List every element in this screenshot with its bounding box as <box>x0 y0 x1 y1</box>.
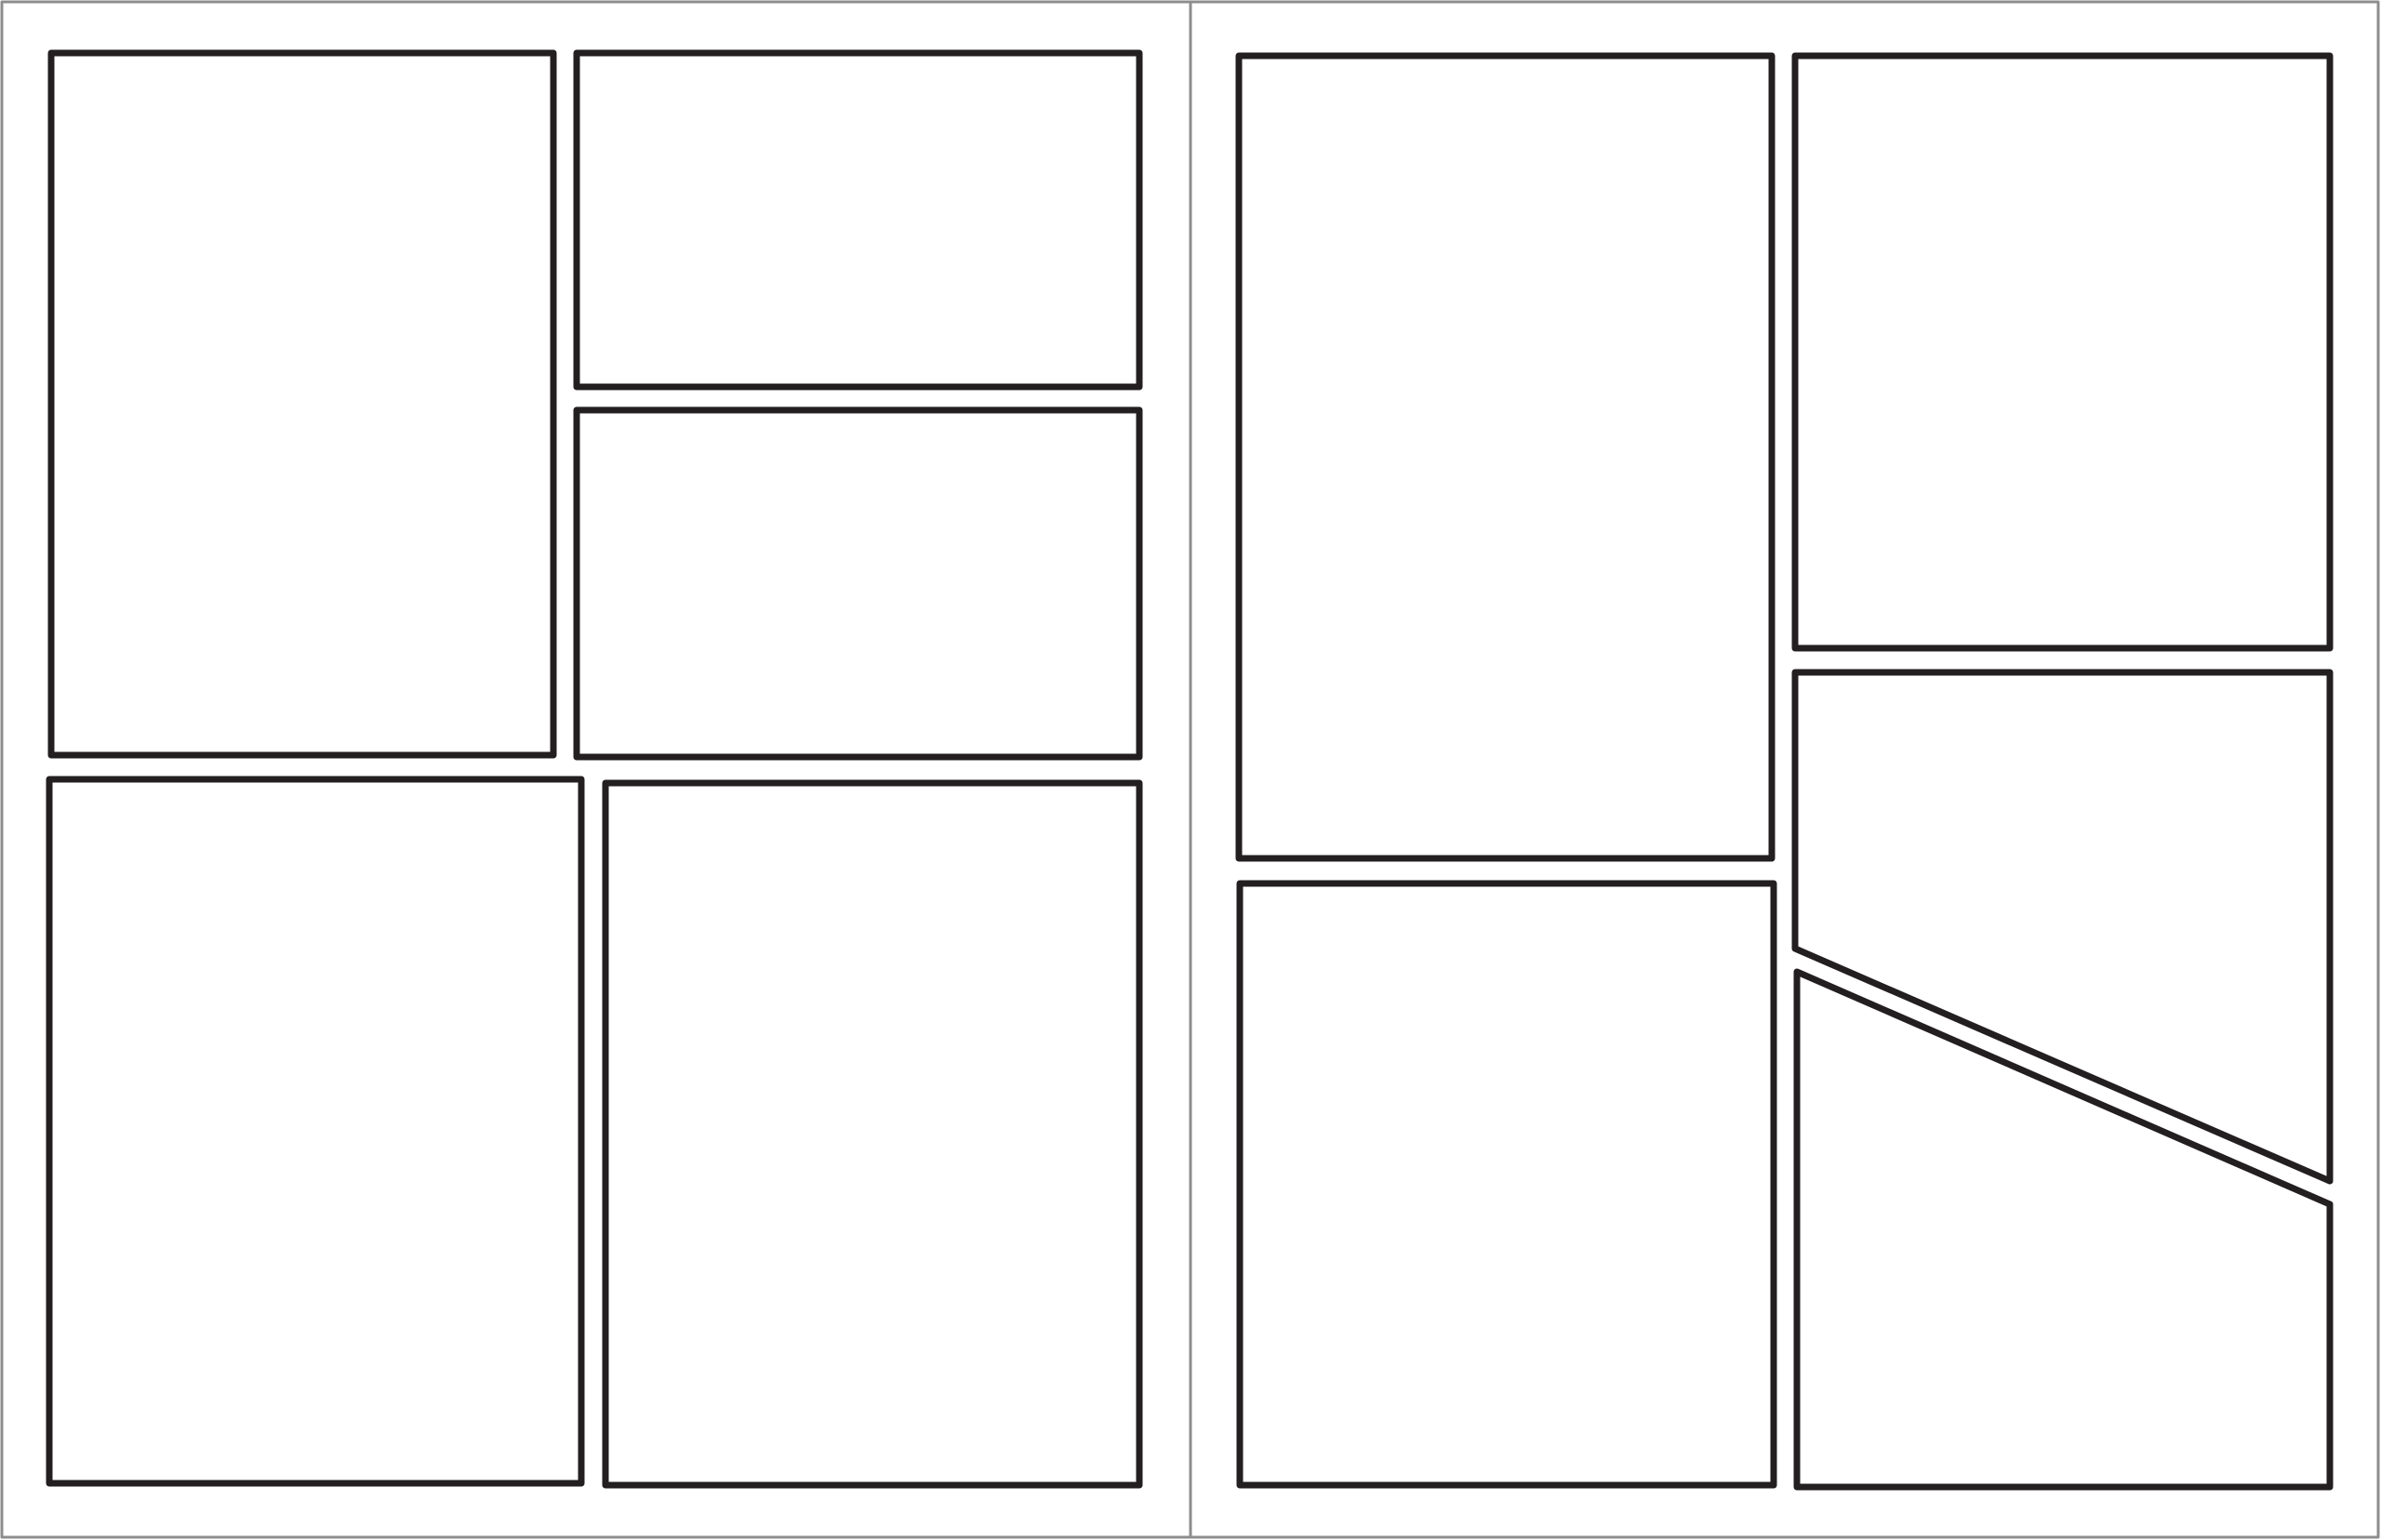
left-page-panel-top-right-lower <box>577 410 1139 757</box>
left-page-panel-top-left <box>51 53 553 755</box>
right-page-panel-bottom-left <box>1240 883 1774 1485</box>
comic-pages-svg <box>0 0 2381 1540</box>
left-page-panel-top-right-upper <box>577 53 1139 387</box>
right-page-panel-top-left <box>1239 56 1772 858</box>
comic-template-canvas <box>0 0 2381 1540</box>
right-page-panel-top-right <box>1795 56 2330 648</box>
left-page-panel-bottom-right <box>605 783 1139 1485</box>
left-page-panel-bottom-left <box>49 779 581 1483</box>
